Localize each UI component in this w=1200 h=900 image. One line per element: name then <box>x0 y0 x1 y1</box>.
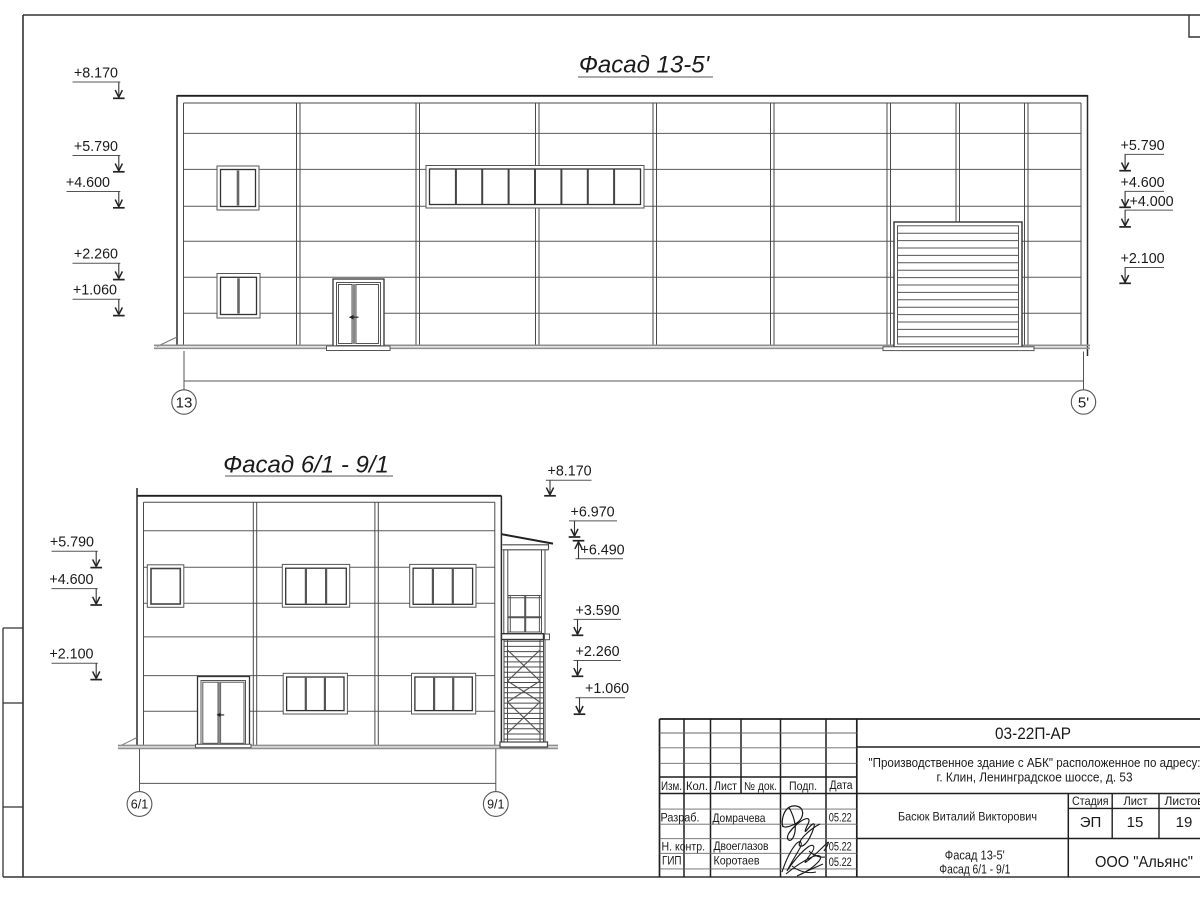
svg-text:Басюк Виталий Викторович: Басюк Виталий Викторович <box>898 811 1037 824</box>
svg-text:Домрачева: Домрачева <box>713 811 766 825</box>
svg-text:Дата: Дата <box>830 780 854 792</box>
svg-text:+4.600: +4.600 <box>1121 175 1165 191</box>
svg-text:Фасад 13-5': Фасад 13-5' <box>579 52 711 79</box>
svg-text:Разраб.: Разраб. <box>661 810 700 824</box>
svg-text:+2.260: +2.260 <box>74 247 118 263</box>
svg-text:№ док.: № док. <box>744 781 777 793</box>
svg-text:Фасад 13-5': Фасад 13-5' <box>945 849 1005 863</box>
svg-text:9/1: 9/1 <box>487 798 504 812</box>
svg-text:Лист: Лист <box>714 781 738 793</box>
svg-text:+1.060: +1.060 <box>585 681 629 697</box>
svg-text:Стадия: Стадия <box>1072 794 1109 808</box>
svg-text:Фасад 6/1 - 9/1: Фасад 6/1 - 9/1 <box>939 863 1010 877</box>
svg-text:+8.170: +8.170 <box>74 65 118 81</box>
svg-text:+5.790: +5.790 <box>1121 138 1165 154</box>
svg-text:13: 13 <box>176 394 193 411</box>
svg-text:ЭП: ЭП <box>1080 814 1102 831</box>
svg-text:г. Клин, Ленинградское шоссе,: г. Клин, Ленинградское шоссе, д. 53 <box>937 771 1133 785</box>
svg-text:19: 19 <box>1176 814 1193 831</box>
svg-text:Лист: Лист <box>1124 794 1148 808</box>
svg-text:Листов: Листов <box>1165 794 1200 808</box>
svg-text:Фасад 6/1 - 9/1: Фасад 6/1 - 9/1 <box>223 452 389 479</box>
svg-text:6/1: 6/1 <box>131 798 148 812</box>
svg-text:Кол.: Кол. <box>686 781 708 793</box>
svg-text:+2.100: +2.100 <box>49 647 93 663</box>
svg-text:+4.600: +4.600 <box>66 175 110 191</box>
svg-text:5': 5' <box>1078 394 1089 411</box>
svg-text:ООО "Альянс": ООО "Альянс" <box>1095 854 1193 871</box>
svg-text:Изм.: Изм. <box>661 781 682 793</box>
svg-text:"Производственное здание с АБК: "Производственное здание с АБК" располож… <box>869 756 1200 770</box>
svg-text:+1.060: +1.060 <box>73 283 117 299</box>
svg-text:Коротаев: Коротаев <box>714 854 760 868</box>
svg-text:15: 15 <box>1127 814 1144 831</box>
svg-text:+4.600: +4.600 <box>49 572 93 588</box>
svg-text:+2.260: +2.260 <box>576 644 620 660</box>
svg-text:03-22П-АР: 03-22П-АР <box>995 725 1071 743</box>
svg-text:Двоеглазов: Двоеглазов <box>714 839 769 853</box>
svg-text:Подп.: Подп. <box>789 781 817 793</box>
svg-text:ГИП: ГИП <box>662 853 682 867</box>
svg-text:+2.100: +2.100 <box>1121 251 1165 267</box>
svg-text:+4.000: +4.000 <box>1130 194 1174 210</box>
svg-text:+3.590: +3.590 <box>576 603 620 619</box>
svg-text:+5.790: +5.790 <box>74 139 118 155</box>
svg-text:Н. контр.: Н. контр. <box>662 840 706 854</box>
svg-text:+6.490: +6.490 <box>581 542 625 558</box>
svg-text:+8.170: +8.170 <box>548 464 592 480</box>
svg-text:+6.970: +6.970 <box>571 504 615 520</box>
svg-text:05.22: 05.22 <box>829 811 852 825</box>
svg-text:05.22: 05.22 <box>829 855 852 869</box>
svg-text:05.22: 05.22 <box>829 839 852 853</box>
svg-text:+5.790: +5.790 <box>50 535 94 551</box>
